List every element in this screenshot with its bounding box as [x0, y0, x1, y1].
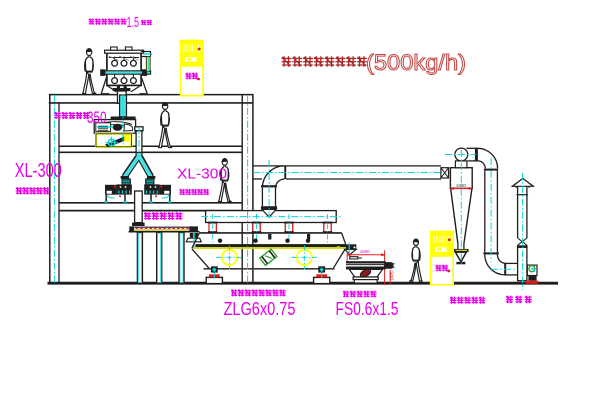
svg-text:1.5: 1.5 [127, 14, 140, 31]
svg-text:FS0.6x1.5: FS0.6x1.5 [336, 298, 399, 319]
svg-text:340: 340 [387, 271, 393, 280]
svg-text:ZLG6x0.75: ZLG6x0.75 [224, 298, 296, 319]
svg-text:1500: 1500 [360, 249, 370, 255]
svg-text:XL-300: XL-300 [177, 167, 227, 183]
svg-text:XL-300: XL-300 [15, 160, 62, 182]
svg-text:350: 350 [87, 109, 107, 127]
svg-text:(500kg/h): (500kg/h) [366, 50, 466, 75]
